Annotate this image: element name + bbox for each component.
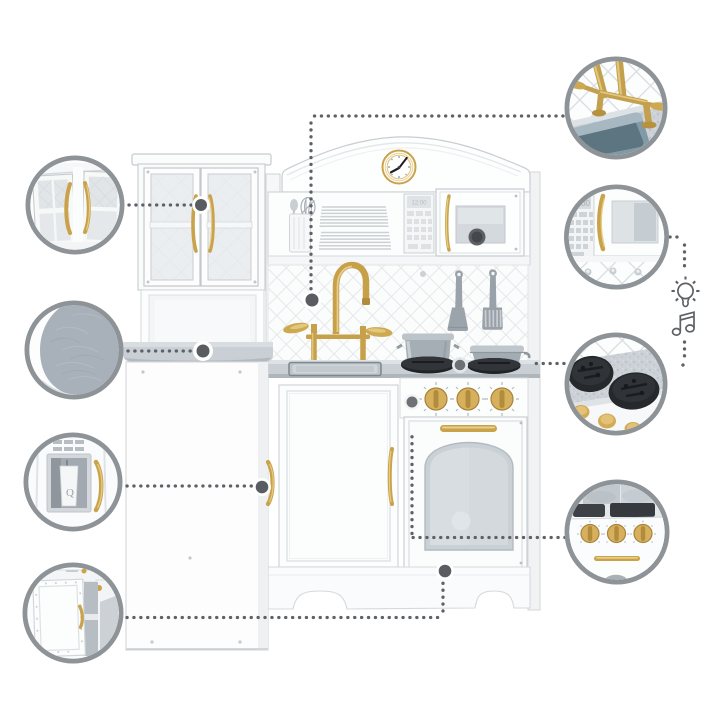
svg-text:12:00: 12:00	[411, 201, 427, 207]
svg-text:Q: Q	[66, 487, 74, 499]
